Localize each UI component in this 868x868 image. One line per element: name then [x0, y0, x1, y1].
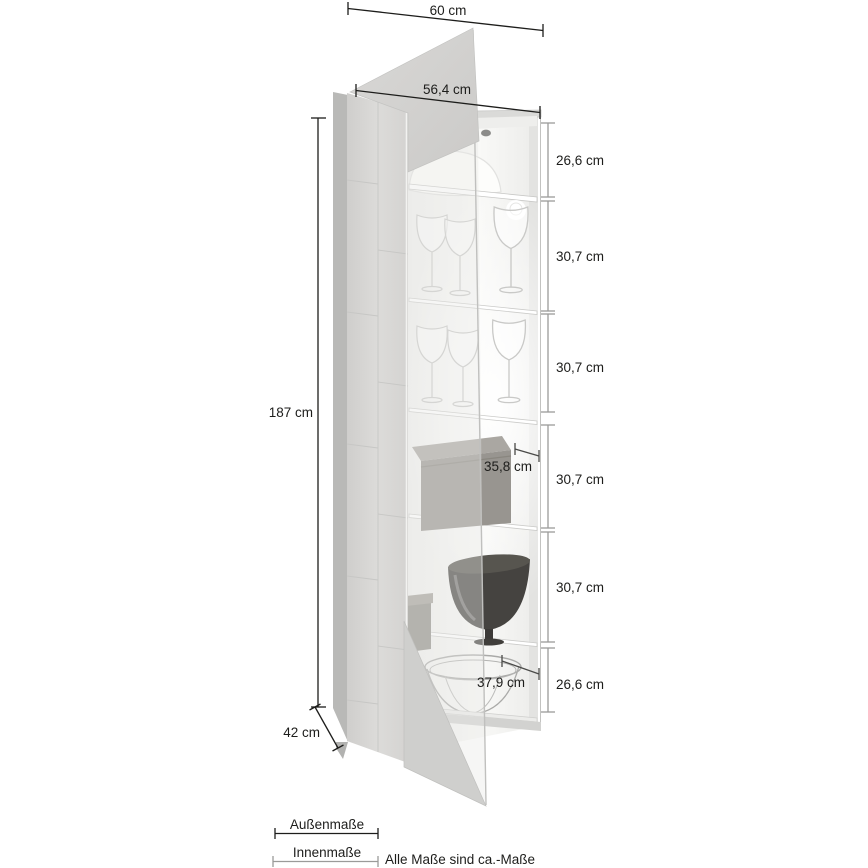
dim-width-outer-label: 60 cm	[430, 3, 467, 18]
dim-section-4-label: 30,7 cm	[556, 472, 604, 487]
dim-width-inner-label: 37,9 cm	[477, 675, 525, 690]
dim-width-outer: 60 cm	[348, 2, 543, 37]
dim-section-6-label: 26,6 cm	[556, 677, 604, 692]
legend-outer-label: Außenmaße	[290, 817, 364, 832]
dim-depth-outer-label: 42 cm	[283, 725, 320, 740]
door-panel	[333, 28, 486, 806]
dim-section-1-label: 26,6 cm	[556, 153, 604, 168]
product-dimension-diagram: 60 cm 56,4 cm 187 cm 42 cm 26,6 cm 30,7 …	[0, 0, 868, 868]
dim-width-front-label: 56,4 cm	[423, 82, 471, 97]
cabinet-side-strip	[333, 92, 348, 742]
cabinet-illustration: 60 cm 56,4 cm 187 cm 42 cm 26,6 cm 30,7 …	[0, 0, 868, 868]
dim-depth-inner-label: 35,8 cm	[484, 459, 532, 474]
legend: Außenmaße Innenmaße Alle Maße sind ca.-M…	[273, 817, 535, 867]
dim-section-3-label: 30,7 cm	[556, 360, 604, 375]
dim-height-outer-label: 187 cm	[269, 405, 313, 420]
dim-height-outer: 187 cm	[269, 118, 326, 707]
cable-hole	[481, 130, 491, 137]
door-stile	[347, 93, 408, 763]
legend-note: Alle Maße sind ca.-Maße	[385, 852, 535, 867]
cabinet-foot	[336, 742, 348, 759]
dim-section-5-label: 30,7 cm	[556, 580, 604, 595]
legend-inner-label: Innenmaße	[293, 845, 361, 860]
dim-section-2-label: 30,7 cm	[556, 249, 604, 264]
